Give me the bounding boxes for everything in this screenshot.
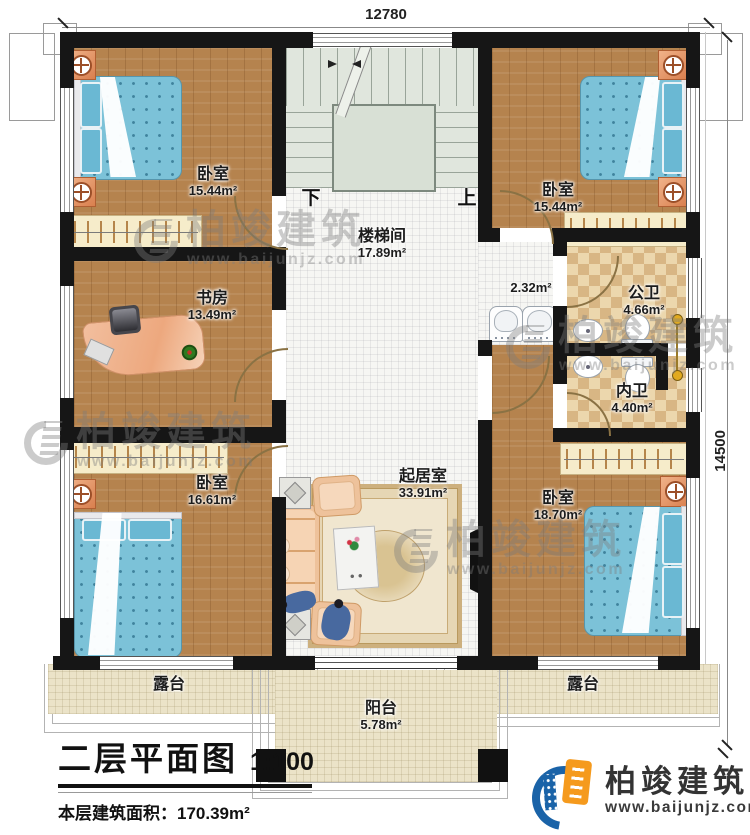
dimension-line-top: [62, 27, 710, 28]
wash-basin: [489, 306, 523, 342]
room-area: 15.44m²: [189, 184, 237, 199]
window: [538, 656, 658, 670]
room-label-balcony: 阳台 5.78m²: [360, 700, 401, 733]
stair-down-label: 下: [301, 183, 320, 210]
bathroom-sink: [573, 355, 603, 378]
wall-segment: [686, 32, 700, 88]
room-label-inner-bath: 内卫 4.40m²: [611, 383, 652, 416]
room-label-bedroom-br: 卧室 18.70m²: [534, 490, 582, 523]
room-label-stairwell: 楼梯间 17.89m²: [358, 228, 406, 261]
room-name: 露台: [567, 676, 599, 694]
title-rule: [58, 784, 312, 788]
terrace-right-floor: [486, 664, 718, 714]
logo-tower-icon: [543, 774, 557, 811]
dimension-line-right: [727, 40, 728, 746]
wall-segment: [686, 412, 700, 478]
logo-building-icon: [562, 759, 592, 805]
brand-url: www.baijunjz.com: [605, 799, 750, 817]
coffee-table: [333, 526, 379, 591]
room-label-terrace-left: 露台: [153, 676, 185, 694]
lamp-icon: [663, 182, 684, 203]
dim-extension-box: [697, 33, 743, 121]
computer-monitor: [109, 305, 142, 336]
room-area: 33.91m²: [399, 486, 447, 501]
pillow: [662, 128, 684, 174]
room-area: 4.40m²: [611, 401, 652, 416]
window: [100, 656, 233, 670]
pillow: [80, 128, 102, 174]
brand-name: 柏竣建筑: [605, 765, 750, 799]
wall-segment: [53, 656, 100, 670]
pillow: [128, 519, 172, 541]
stair-direction-arrow: [352, 60, 361, 68]
stair-landing: [332, 104, 436, 192]
shower-rail: [676, 318, 678, 378]
room-name: 起居室: [399, 468, 447, 486]
room-area: 17.89m²: [358, 246, 406, 261]
room-area: 18.70m²: [534, 508, 582, 523]
room-label-study: 书房 13.49m²: [188, 290, 236, 323]
wall-segment: [553, 343, 668, 356]
nightstand: [658, 177, 688, 207]
wardrobe: [68, 440, 228, 474]
room-name: 卧室: [188, 475, 236, 493]
room-label-living: 起居室 33.91m²: [399, 468, 447, 501]
plan-title: 二层平面图: [58, 732, 238, 780]
bed-headboard: [74, 512, 182, 519]
lamp-icon: [665, 481, 686, 502]
room-name: 书房: [188, 290, 236, 308]
window: [688, 368, 702, 412]
title-block: 二层平面图 1:100 本层建筑面积：170.39m² 层高：3.4m: [58, 732, 314, 835]
room-name: 内卫: [611, 383, 652, 401]
wall-segment: [478, 228, 500, 242]
window: [60, 450, 74, 618]
brand-logo: 柏竣建筑 www.baijunjz.com: [532, 758, 750, 824]
window: [60, 88, 74, 212]
pillow: [80, 82, 102, 128]
wall-segment: [272, 497, 286, 656]
title-rule-thin: [58, 792, 312, 793]
room-name: 楼梯间: [358, 228, 406, 246]
room-area: 4.66m²: [623, 303, 664, 318]
eave-line: [705, 32, 706, 670]
bathroom-sink: [573, 319, 603, 342]
room-label-terrace-right: 露台: [567, 676, 599, 694]
room-area: 2.32m²: [510, 281, 551, 296]
wall-segment: [60, 247, 286, 261]
nightstand: [658, 50, 688, 80]
wall-segment: [656, 343, 668, 390]
balcony-pillar: [478, 749, 508, 782]
wall-segment: [272, 261, 286, 310]
pillow: [662, 566, 684, 618]
wardrobe: [560, 443, 688, 475]
room-name: 卧室: [534, 182, 582, 200]
wardrobe: [68, 215, 202, 249]
window: [686, 478, 700, 628]
window: [60, 286, 74, 398]
wall-segment: [478, 420, 492, 656]
room-label-bedroom-tr: 卧室 15.44m²: [534, 182, 582, 215]
wash-basin: [522, 306, 557, 342]
room-label-vestibule: 2.32m²: [510, 281, 551, 296]
stair-treads-left: [286, 104, 332, 188]
window: [686, 88, 700, 212]
wall-segment: [478, 340, 492, 356]
room-area: 5.78m²: [360, 718, 401, 733]
stair-treads-right: [432, 104, 478, 188]
room-area: 13.49m²: [188, 308, 236, 323]
wall-segment: [60, 32, 74, 88]
floor-height-text: 层高：3.4m: [58, 830, 314, 835]
floor-area-text: 本层建筑面积：170.39m²: [58, 799, 314, 824]
wall-segment: [478, 32, 492, 242]
shower-knob: [672, 314, 683, 325]
stair-direction-arrow: [328, 60, 337, 68]
stair-treads-top: [286, 48, 478, 106]
floor-plan: 12780 14500: [0, 0, 750, 835]
dimension-tick: [717, 747, 728, 758]
armchair: [312, 474, 363, 517]
wall-segment: [552, 228, 700, 242]
wall-segment: [553, 242, 567, 256]
wall-segment: [658, 656, 700, 670]
room-label-bedroom-tl: 卧室 15.44m²: [189, 166, 237, 199]
room-name: 公卫: [623, 285, 664, 303]
pillow: [662, 82, 684, 128]
room-name: 卧室: [189, 166, 237, 184]
sliding-door: [315, 657, 457, 669]
room-area: 16.61m²: [188, 493, 236, 508]
pillow: [662, 513, 684, 565]
stair-up-label: 上: [457, 183, 476, 210]
window: [313, 33, 452, 47]
window: [688, 258, 702, 318]
brand-logo-icon: [532, 758, 598, 824]
plan-scale: 1:100: [250, 748, 314, 777]
room-area: 15.44m²: [534, 200, 582, 215]
lamp-icon: [663, 55, 684, 76]
dimension-top-value: 12780: [365, 6, 407, 23]
wall-segment: [272, 32, 286, 196]
plant: [181, 344, 198, 361]
room-label-bedroom-bl: 卧室 16.61m²: [188, 475, 236, 508]
room-name: 卧室: [534, 490, 582, 508]
room-name: 露台: [153, 676, 185, 694]
room-label-public-bath: 公卫 4.66m²: [623, 285, 664, 318]
wall-segment: [233, 656, 315, 670]
shower-knob: [672, 370, 683, 381]
room-name: 阳台: [360, 700, 401, 718]
wall-segment: [686, 318, 700, 368]
wall-segment: [60, 427, 286, 443]
wall-segment: [457, 656, 538, 670]
dimension-right-value: 14500: [712, 430, 729, 472]
